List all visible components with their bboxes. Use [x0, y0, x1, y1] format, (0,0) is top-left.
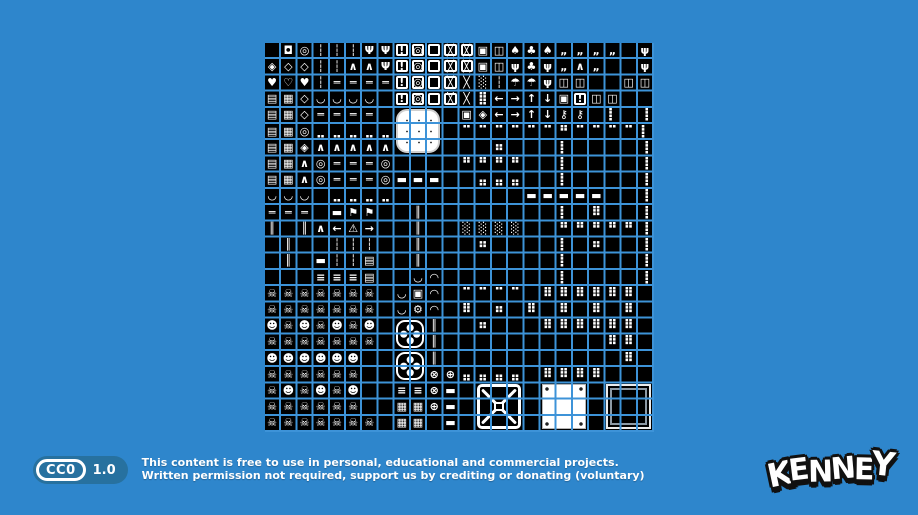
tile-skull-creature: ☠	[297, 416, 313, 432]
tile-skull-creature: ☠	[346, 367, 362, 383]
tile-arrow-right-sign: →	[508, 108, 524, 124]
tile-empty-tile	[524, 400, 540, 416]
tile-zigzag-spikes: ∧	[346, 59, 362, 75]
tile-platform: ▬	[524, 189, 540, 205]
tile-ring-button: ◎	[314, 156, 330, 172]
tile-empty-tile	[476, 189, 492, 205]
tile-empty-tile	[476, 254, 492, 270]
tile-empty-tile	[541, 238, 557, 254]
tile-skull-creature: ☠	[346, 416, 362, 432]
tile-empty-tile	[557, 335, 573, 351]
tile-empty-tile	[378, 221, 394, 237]
tile-ceiling-dots: ⠉	[589, 124, 605, 140]
tile-hazard-stripes: ░	[508, 221, 524, 237]
tile-platform: ▬	[443, 383, 459, 399]
tile-empty-tile	[589, 108, 605, 124]
tile-empty-tile	[524, 140, 540, 156]
large-fan-bottom	[396, 352, 424, 380]
tile-chain: ┆	[330, 43, 346, 59]
tile-dotted-edge-right: ⢸	[638, 238, 654, 254]
tile-hanging-rope-left: ◡	[314, 92, 330, 108]
tile-empty-tile	[622, 43, 638, 59]
tile-empty-tile	[524, 205, 540, 221]
tile-dotted-terrain: ⠿	[557, 319, 573, 335]
tile-scatter-dots: ⠶	[492, 140, 508, 156]
tile-empty-tile	[443, 254, 459, 270]
tile-button-box: ◎	[411, 75, 427, 91]
tile-chain: ┆	[330, 59, 346, 75]
tile-bridge-deck: ═	[346, 173, 362, 189]
tile-empty-tile	[378, 238, 394, 254]
tile-empty-tile	[378, 302, 394, 318]
tile-empty-tile	[395, 221, 411, 237]
tile-ground-dots: ⣀	[378, 189, 394, 205]
tile-ceiling-dots: ⠉	[573, 124, 589, 140]
tile-skull-creature: ☠	[314, 302, 330, 318]
tile-empty-tile	[492, 351, 508, 367]
tile-chain: ┆	[346, 238, 362, 254]
tile-skull-creature: ☠	[314, 367, 330, 383]
tile-empty-tile	[605, 254, 621, 270]
tile-grass-tuft: „	[589, 59, 605, 75]
tile-platform: ▬	[573, 189, 589, 205]
tileset-image: ◘◎┆┆┆ΨΨ!◎╳╳▣◫♠♣♠„„„„ψ◈◇◇┆┆∧∧Ψ!◎╳╳▣◫ψ♣ψ„∧…	[265, 43, 654, 432]
tile-door: ◫	[638, 75, 654, 91]
tile-dotted-edge-top: ⠛	[605, 221, 621, 237]
tile-dotted-terrain: ⠿	[622, 335, 638, 351]
tile-empty-tile	[362, 383, 378, 399]
tile-exclamation-box: !	[395, 59, 411, 75]
tile-boxed-button: ▣	[557, 92, 573, 108]
tile-empty-tile	[508, 319, 524, 335]
tile-empty-tile	[443, 335, 459, 351]
crate-cross-3x3	[477, 384, 522, 429]
tile-empty-tile	[443, 140, 459, 156]
tile-empty-tile	[589, 400, 605, 416]
tile-empty-tile	[573, 173, 589, 189]
tile-ceiling-dots: ⠉	[492, 286, 508, 302]
tile-boxed-button: ▣	[411, 286, 427, 302]
tile-skull-creature: ☠	[265, 383, 281, 399]
tile-skull-creature: ☠	[362, 286, 378, 302]
tile-dotted-edge-top: ⠛	[492, 156, 508, 172]
tile-cross-tile: ╳	[460, 75, 476, 91]
tile-empty-box	[427, 59, 443, 75]
tile-hanging-rope-left: ◡	[265, 189, 281, 205]
tile-pipe-post: ║	[297, 221, 313, 237]
tile-empty-tile	[589, 351, 605, 367]
tile-empty-tile	[378, 416, 394, 432]
license-line2: Written permission not required, support…	[142, 470, 645, 483]
tile-empty-tile	[541, 254, 557, 270]
tile-dotted-edge-bottom: ⣤	[508, 173, 524, 189]
tile-empty-tile	[508, 140, 524, 156]
tile-empty-tile	[378, 351, 394, 367]
tile-skull-creature: ☠	[281, 416, 297, 432]
tile-empty-tile	[395, 205, 411, 221]
tile-dotted-edge-right: ⢸	[638, 108, 654, 124]
tile-empty-tile	[541, 205, 557, 221]
tile-warning-sign: ⚠	[346, 221, 362, 237]
tile-bridge-deck: ═	[281, 205, 297, 221]
tile-skull-creature: ☠	[297, 335, 313, 351]
tile-plant: ψ	[638, 59, 654, 75]
tile-arrow-down-sign: ↓	[541, 92, 557, 108]
tile-ornate-gem: ◈	[265, 59, 281, 75]
tile-small-fan: ⊕	[427, 400, 443, 416]
tile-signpost-flag: ⚑	[346, 205, 362, 221]
tile-empty-tile	[265, 43, 281, 59]
tile-zigzag-spikes: ∧	[297, 156, 313, 172]
tile-bridge-deck: ═	[362, 156, 378, 172]
tile-ceiling-dots: ⠉	[460, 286, 476, 302]
tile-empty-tile	[476, 335, 492, 351]
tile-empty-tile	[638, 335, 654, 351]
tile-dotted-edge-left: ⡇	[605, 108, 621, 124]
tile-skull-creature: ☠	[330, 416, 346, 432]
tile-tree-small: ♠	[541, 43, 557, 59]
tile-empty-tile	[395, 270, 411, 286]
tile-dotted-terrain: ⠿	[460, 302, 476, 318]
tile-bridge-deck: ═	[362, 108, 378, 124]
tile-ground-dots: ⣀	[362, 124, 378, 140]
tile-arrow-up-sign: ↑	[524, 92, 540, 108]
tile-empty-tile	[443, 270, 459, 286]
tile-dotted-terrain: ⠿	[589, 367, 605, 383]
tile-ceiling-dots: ⠉	[476, 124, 492, 140]
tile-platform: ▬	[314, 254, 330, 270]
tile-empty-tile	[508, 254, 524, 270]
tile-plant: ψ	[541, 59, 557, 75]
tile-skull-creature: ☠	[281, 400, 297, 416]
tile-pipe-post: ║	[427, 351, 443, 367]
tile-empty-tile	[378, 319, 394, 335]
tile-pipe-post: ║	[411, 238, 427, 254]
tile-scatter-dots: ⠶	[476, 238, 492, 254]
tile-hanging-rope-left: ◡	[346, 92, 362, 108]
tile-empty-tile	[605, 351, 621, 367]
tile-empty-tile	[297, 270, 313, 286]
tile-creature-face: ☻	[297, 319, 313, 335]
tile-platform: ▬	[443, 400, 459, 416]
tile-heart: ♥	[265, 75, 281, 91]
tile-door: ◫	[605, 92, 621, 108]
tile-skull-creature: ☠	[281, 367, 297, 383]
tile-empty-tile	[443, 319, 459, 335]
tile-hanging-rope-left: ◡	[411, 270, 427, 286]
tile-rails: ▦	[281, 140, 297, 156]
tile-ladder: ▤	[265, 140, 281, 156]
tile-ground-dots: ⣀	[330, 124, 346, 140]
tile-empty-tile	[443, 286, 459, 302]
tile-empty-tile	[573, 254, 589, 270]
tile-arrow-left-sign: ←	[492, 92, 508, 108]
tile-button-box: ◎	[411, 43, 427, 59]
tile-dotted-edge-top: ⠛	[557, 221, 573, 237]
tile-empty-tile	[443, 156, 459, 172]
tile-arrow-down-sign: ↓	[541, 108, 557, 124]
tile-crossed-box: ╳	[443, 43, 459, 59]
tile-door: ◫	[557, 75, 573, 91]
tile-door: ◫	[589, 92, 605, 108]
tile-dotted-edge-top: ⠛	[476, 156, 492, 172]
large-fan-top	[396, 320, 424, 348]
tile-dotted-terrain: ⠿	[589, 319, 605, 335]
tile-dotted-edge-left: ⡇	[557, 140, 573, 156]
tile-bridge-deck: ═	[330, 156, 346, 172]
tile-fence: ≡	[314, 270, 330, 286]
tile-cross-tile: ╳	[460, 92, 476, 108]
tile-grapple-hook: Ψ	[378, 43, 394, 59]
tile-empty-tile	[573, 140, 589, 156]
tile-empty-tile	[589, 254, 605, 270]
tile-crossed-box: ╳	[443, 75, 459, 91]
cc0-badge: CC0 1.0	[33, 456, 128, 484]
tile-ground-dots: ⣀	[346, 189, 362, 205]
tile-empty-tile	[395, 189, 411, 205]
tile-empty-tile	[524, 319, 540, 335]
tile-dotted-edge-top: ⠛	[508, 156, 524, 172]
tile-empty-tile	[541, 156, 557, 172]
tile-empty-tile	[460, 319, 476, 335]
tile-creature-face: ☻	[281, 383, 297, 399]
tile-grass-tuft: „	[605, 43, 621, 59]
tile-dotted-terrain: ⠿	[541, 286, 557, 302]
tile-empty-tile	[638, 92, 654, 108]
tile-empty-tile	[589, 140, 605, 156]
tile-empty-tile	[378, 286, 394, 302]
tile-dotted-edge-left: ⡇	[557, 156, 573, 172]
tile-hanging-rope-left: ◡	[362, 92, 378, 108]
tile-dotted-terrain: ⠿	[573, 367, 589, 383]
tile-skull-creature: ☠	[265, 400, 281, 416]
tile-ground-dots: ⣀	[314, 124, 330, 140]
tile-empty-tile	[622, 205, 638, 221]
tile-platform: ▬	[411, 173, 427, 189]
tile-exclamation-box: !	[573, 92, 589, 108]
tile-door: ◫	[573, 75, 589, 91]
kenney-logo: KENNEY	[767, 441, 894, 499]
tile-dotted-terrain: ⠿	[589, 302, 605, 318]
tile-dotted-edge-bottom: ⣤	[492, 367, 508, 383]
logo-letter: Y	[870, 444, 896, 485]
tile-hazard-stripes: ░	[492, 221, 508, 237]
tile-small-fan-x: ⊗	[427, 383, 443, 399]
tile-empty-tile	[605, 302, 621, 318]
tile-skull-creature: ☠	[297, 383, 313, 399]
tile-hanging-rope-left: ◡	[297, 189, 313, 205]
tile-ring-button: ◎	[297, 124, 313, 140]
tile-skull-creature: ☠	[330, 302, 346, 318]
tile-empty-tile	[281, 221, 297, 237]
tile-gem-outline: ◇	[297, 59, 313, 75]
tile-empty-tile	[605, 156, 621, 172]
tile-empty-tile	[281, 270, 297, 286]
tile-bridge-deck: ═	[297, 205, 313, 221]
tile-zigzag-spikes: ∧	[346, 140, 362, 156]
tile-empty-tile	[622, 140, 638, 156]
tile-empty-tile	[297, 238, 313, 254]
tile-skull-creature: ☠	[281, 335, 297, 351]
tile-empty-tile	[524, 351, 540, 367]
tile-skull-creature: ☠	[281, 286, 297, 302]
tile-dotted-edge-bottom: ⣤	[492, 173, 508, 189]
tile-dotted-edge-left: ⡇	[638, 124, 654, 140]
tile-ladder: ▤	[362, 270, 378, 286]
tile-empty-box	[427, 92, 443, 108]
tile-plant: ψ	[638, 43, 654, 59]
tile-ring-button: ◎	[378, 173, 394, 189]
tile-fence: ≡	[411, 383, 427, 399]
tile-empty-tile	[460, 189, 476, 205]
tile-empty-tile	[460, 383, 476, 399]
tile-empty-tile	[573, 270, 589, 286]
tile-ceiling-dots: ⠉	[605, 124, 621, 140]
tile-empty-tile	[622, 189, 638, 205]
tile-empty-tile	[573, 238, 589, 254]
tile-dotted-terrain: ⠿	[573, 286, 589, 302]
tile-empty-tile	[476, 351, 492, 367]
tile-key: ⚷	[573, 108, 589, 124]
tile-empty-tile	[460, 140, 476, 156]
tile-zigzag-spikes: ∧	[362, 59, 378, 75]
tile-empty-tile	[638, 302, 654, 318]
tile-ground-dots: ⣀	[346, 124, 362, 140]
tile-empty-tile	[524, 270, 540, 286]
tile-empty-tile	[622, 270, 638, 286]
tile-empty-tile	[395, 156, 411, 172]
tile-ring-button: ◎	[314, 173, 330, 189]
tile-skull-creature: ☠	[330, 335, 346, 351]
white-square-3x3	[542, 384, 587, 429]
tile-dotted-terrain: ⠿	[557, 286, 573, 302]
tile-bridge-deck: ═	[378, 75, 394, 91]
tile-skull-creature: ☠	[265, 367, 281, 383]
tile-empty-tile	[622, 92, 638, 108]
tile-speckled-block: ⣿	[476, 92, 492, 108]
tile-empty-tile	[605, 140, 621, 156]
tile-bridge-deck: ═	[330, 173, 346, 189]
tile-dotted-terrain: ⠿	[589, 286, 605, 302]
tile-tree-small: ♠	[508, 43, 524, 59]
tile-empty-tile	[508, 270, 524, 286]
white-rounded-blob	[396, 109, 441, 154]
tile-dotted-edge-left: ⡇	[557, 205, 573, 221]
tile-small-fan: ⊕	[443, 367, 459, 383]
tile-skull-creature: ☠	[314, 400, 330, 416]
tile-mushroom: ☂	[508, 75, 524, 91]
tile-empty-tile	[443, 238, 459, 254]
tile-dotted-terrain: ⠿	[589, 205, 605, 221]
tile-grass-tuft: „	[557, 43, 573, 59]
tile-door: ◫	[492, 43, 508, 59]
tile-hanging-rope-left: ◡	[281, 189, 297, 205]
tile-hanging-rope-left: ◡	[395, 286, 411, 302]
tile-hazard-stripes: ░	[460, 221, 476, 237]
tile-dotted-terrain: ⠿	[605, 319, 621, 335]
tile-ladder: ▤	[265, 156, 281, 172]
tile-ceiling-dots: ⠉	[524, 124, 540, 140]
tile-ceiling-dots: ⠉	[460, 124, 476, 140]
tile-gear: ⚙	[411, 302, 427, 318]
tile-empty-tile	[492, 189, 508, 205]
tile-empty-tile	[524, 156, 540, 172]
tile-ceiling-dots: ⠉	[508, 286, 524, 302]
tile-empty-tile	[427, 221, 443, 237]
tile-dotted-terrain: ⠿	[541, 367, 557, 383]
tile-skull-creature: ☠	[314, 286, 330, 302]
tile-dotted-edge-left: ⡇	[557, 270, 573, 286]
tile-ornate-gem: ◈	[297, 140, 313, 156]
tile-empty-tile	[622, 108, 638, 124]
tile-pipe-post: ║	[427, 319, 443, 335]
tile-creature-face: ☻	[346, 351, 362, 367]
tile-rails: ▦	[281, 92, 297, 108]
tile-skull-creature: ☠	[281, 319, 297, 335]
tile-skull-creature: ☠	[346, 319, 362, 335]
tile-exclamation-box: !	[395, 92, 411, 108]
tile-empty-tile	[573, 205, 589, 221]
tile-skull-creature: ☠	[362, 335, 378, 351]
tile-empty-tile	[524, 383, 540, 399]
tile-chain: ┆	[314, 59, 330, 75]
tile-dotted-terrain: ⠿	[622, 319, 638, 335]
tile-scatter-dots: ⠶	[492, 302, 508, 318]
tile-grid: ◘◎┆┆┆ΨΨ!◎╳╳▣◫♠♣♠„„„„ψ◈◇◇┆┆∧∧Ψ!◎╳╳▣◫ψ♣ψ„∧…	[265, 43, 654, 432]
tile-empty-tile	[476, 205, 492, 221]
tile-empty-tile	[378, 92, 394, 108]
tile-chain: ┆	[330, 238, 346, 254]
tile-empty-tile	[589, 416, 605, 432]
tile-dotted-edge-bottom: ⣤	[476, 173, 492, 189]
tile-platform: ▬	[557, 189, 573, 205]
tile-empty-tile	[460, 254, 476, 270]
tile-scatter-dots: ⠶	[476, 319, 492, 335]
tile-empty-tile	[460, 205, 476, 221]
tile-creature-face: ☻	[281, 351, 297, 367]
tile-empty-tile	[541, 351, 557, 367]
tile-empty-tile	[427, 189, 443, 205]
tile-ring-button: ◎	[378, 156, 394, 172]
tile-empty-tile	[524, 367, 540, 383]
tile-dotted-terrain: ⠿	[541, 319, 557, 335]
tile-dotted-terrain: ⠿	[605, 335, 621, 351]
tile-bridge-deck: ═	[346, 156, 362, 172]
tile-empty-tile	[638, 351, 654, 367]
tile-grapple-hook: Ψ	[362, 43, 378, 59]
tile-empty-tile	[622, 254, 638, 270]
tile-boxed-button: ▣	[460, 108, 476, 124]
tile-empty-tile	[378, 383, 394, 399]
tile-platform: ▬	[589, 189, 605, 205]
tile-empty-tile	[524, 416, 540, 432]
tile-pipe-post: ║	[411, 205, 427, 221]
tile-dotted-terrain: ⠿	[622, 351, 638, 367]
tile-empty-tile	[557, 351, 573, 367]
tile-creature-face: ☻	[346, 383, 362, 399]
tile-grass-tuft: „	[557, 59, 573, 75]
tile-rails: ▦	[281, 124, 297, 140]
tile-empty-tile	[362, 367, 378, 383]
tile-empty-tile	[378, 108, 394, 124]
tile-empty-tile	[622, 59, 638, 75]
tile-empty-tile	[378, 400, 394, 416]
tile-bridge-deck: ═	[330, 108, 346, 124]
tile-pipe-post: ║	[427, 335, 443, 351]
tile-creature-face: ☻	[362, 319, 378, 335]
tile-arrow-right-sign: →	[362, 221, 378, 237]
tile-zigzag-spikes: ∧	[297, 173, 313, 189]
